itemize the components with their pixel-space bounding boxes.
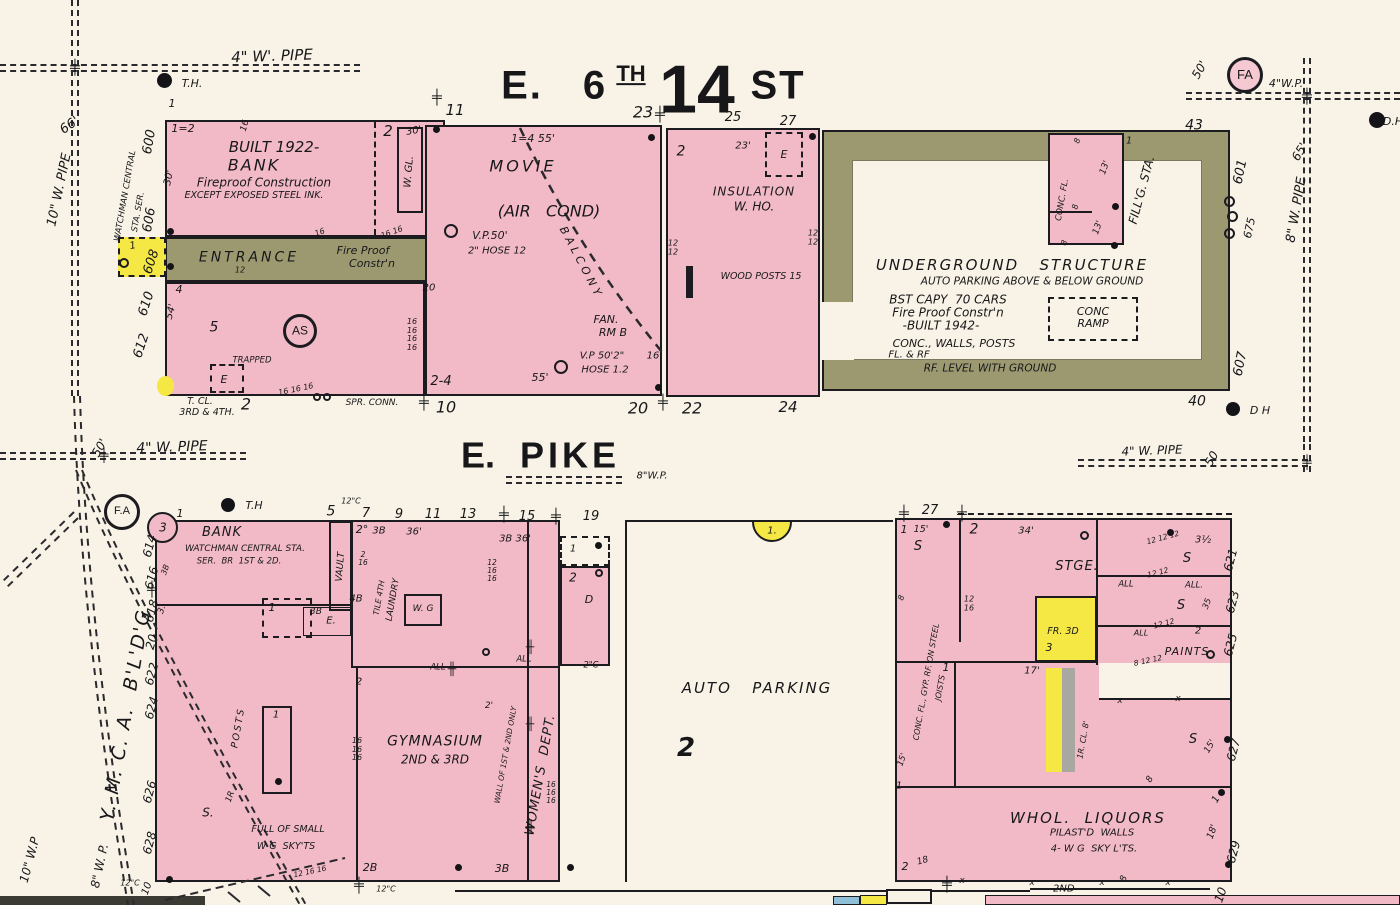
water-pipe-east-vertical <box>1303 58 1311 442</box>
label-15-pike: 15 <box>519 510 536 524</box>
water-pipe-north-west <box>0 64 360 72</box>
wall-dot-6 <box>655 384 662 391</box>
label-27-e: 27 <box>922 504 939 518</box>
label-5-as-room: 5 <box>210 320 219 335</box>
valve-6: ╪ <box>658 394 668 409</box>
label-all-e3: ALL <box>1134 630 1148 639</box>
label-auto-parking: AUTO PARKING <box>682 680 833 696</box>
label-1-cf: 1 <box>1126 137 1132 148</box>
valve-8: ╪ <box>499 506 509 521</box>
label-hose12: 2" HOSE 12 <box>468 247 526 258</box>
x-mark-3: x <box>1099 879 1104 889</box>
underground-west-opening <box>822 302 854 360</box>
label-2nd-3rd: 2ND & 3RD <box>401 754 469 767</box>
wall-dot-13 <box>455 864 462 871</box>
x-mark-1: x <box>959 877 964 887</box>
label-23-top: 23 <box>633 103 653 120</box>
label-paints: PAINTS <box>1165 646 1210 658</box>
bottom-blue-building <box>833 896 860 905</box>
street-e6th-th: TH <box>616 62 645 86</box>
label-movie: MOVIE <box>489 157 556 174</box>
label-623: 623 <box>1224 589 1242 614</box>
label-vp50-2: V.P 50'2" <box>580 352 625 363</box>
label-fire-proof-entr: Fire Proof <box>337 245 390 257</box>
label-675: 675 <box>1242 216 1258 239</box>
label-constrn-entr: Constr'n <box>349 258 395 270</box>
label-3-fr: 3 <box>1046 642 1053 654</box>
label-2-ins: 2 <box>677 144 686 159</box>
label-wg-skyts: W G SKY'TS <box>257 842 315 852</box>
label-25-top: 25 <box>725 111 742 125</box>
label-trapped: TRAPPED <box>232 356 271 365</box>
wall-x960 <box>959 518 961 642</box>
label-7-pike: 7 <box>362 507 370 521</box>
label-3-corner: 3 <box>159 522 167 535</box>
label-16x3-womens: 16 16 16 <box>546 781 556 805</box>
small-room-2 <box>560 566 610 666</box>
label-built-1922: BUILT 1922- <box>229 139 320 155</box>
small-room-1 <box>560 536 610 566</box>
gas-tank-circle-2 <box>1227 211 1238 222</box>
vertical-pipe-circle-1 <box>444 224 458 238</box>
label-2b: 2B <box>363 862 378 874</box>
wall-dot-1 <box>433 126 440 133</box>
label-12-12-e: 12 12 <box>808 229 818 246</box>
label-bank-s: BANK <box>202 526 242 540</box>
label-dh-se: D H <box>1250 405 1270 417</box>
label-2-s: 2 <box>241 395 251 412</box>
label-10-s: 10 <box>436 398 456 415</box>
valve-15: ╪ <box>942 876 952 891</box>
label-underground-structure: UNDERGROUND STRUCTURE <box>876 257 1148 273</box>
x-mark-4: x <box>1165 879 1170 889</box>
label-40: 40 <box>1188 394 1206 409</box>
wall-dot-18 <box>166 876 173 883</box>
label-12-16-e: 12 16 <box>964 595 974 612</box>
gym-west-wall <box>356 666 358 882</box>
label-all-e2: ALL. <box>1185 581 1203 590</box>
label-2nd-s: 2ND — <box>1053 885 1091 896</box>
label-1-e2: 1 <box>943 662 950 674</box>
label-612: 612 <box>131 332 152 360</box>
label-4b: 4B <box>349 595 362 606</box>
label-3rd-4th: 3RD & 4TH. <box>179 408 234 418</box>
wall-dot-8 <box>167 263 174 270</box>
valve-9: ╪ <box>551 508 561 523</box>
label-621: 621 <box>1222 547 1240 572</box>
label-11-pike: 11 <box>425 508 442 522</box>
label-17-e: 17' <box>1024 667 1039 678</box>
label-insulation: INSULATION <box>713 186 795 199</box>
label-16-theater-e: 16 <box>647 352 660 363</box>
label-2-gym: 2 <box>356 678 362 689</box>
wall-dot-16 <box>1218 789 1225 796</box>
label-full-of-small: FULL OF SMALL <box>251 825 324 835</box>
pipe-branch-b <box>6 518 78 588</box>
label-34-e: 34' <box>1018 527 1033 538</box>
label-629: 629 <box>1225 839 1243 864</box>
label-4-as-corner: 4 <box>176 284 183 296</box>
label-conc-walls: CONC., WALLS, POSTS <box>893 338 1016 350</box>
label-10in-wp-sw: 10" W.P <box>18 836 43 884</box>
wood-post-bar <box>686 266 693 298</box>
label-1-tick-top: 1 <box>169 98 176 110</box>
wall-dot-3 <box>809 133 816 140</box>
valve-4: ╪ <box>1302 88 1312 103</box>
bottom-dark-bar <box>0 896 205 905</box>
label-12-16-16: 12 16 16 <box>487 559 497 583</box>
label-12c-top: 12"C <box>341 498 360 507</box>
label-600: 600 <box>141 129 159 156</box>
label-3b-s: 3B <box>495 863 510 875</box>
label-2-pink-room: 2 <box>569 572 577 585</box>
label-36-a: 36' <box>406 528 421 539</box>
label-20-theater-w: 20 <box>423 284 436 295</box>
sprinkler-conn-circle-1 <box>313 393 321 401</box>
dh-hydrant-se <box>1226 402 1240 416</box>
bottom-yellow-building <box>860 895 887 905</box>
label-built-1942: -BUILT 1942- <box>903 320 980 333</box>
label-bank-n: BANK <box>228 156 280 173</box>
label-3half: 3½ <box>1195 536 1211 547</box>
label-2-e2: 2 <box>1195 627 1201 638</box>
label-fl-rf: FL. & RF <box>888 351 929 362</box>
label-607: 607 <box>1232 350 1251 377</box>
label-2deg: 2° <box>356 524 369 536</box>
wall-dot-4 <box>1112 203 1119 210</box>
label-hose-1-2: HOSE 1.2 <box>581 366 628 377</box>
label-fan: FAN. <box>594 314 619 326</box>
label-tcl: T. CL. <box>187 397 213 407</box>
x-mark-5: x <box>1117 697 1122 707</box>
label-9-pike: 9 <box>395 508 403 522</box>
bank-south-wall <box>155 604 352 606</box>
label-606: 606 <box>141 207 159 234</box>
label-20-s: 20 <box>628 399 648 416</box>
x-mark-2: x <box>1029 879 1034 889</box>
label-spr-conn: SPR. CONN. <box>346 399 399 409</box>
label-rm-b: RM B <box>599 327 627 339</box>
label-2c-room: 2"C <box>583 661 598 670</box>
label-610: 610 <box>136 290 157 318</box>
valve-5: ╪ <box>419 394 429 409</box>
x-mark-6: x <box>1175 695 1180 705</box>
water-pipe-pike-mid <box>506 476 622 484</box>
label-8in-wp-mid: 8"W.P. <box>636 472 667 483</box>
label-3b-b: 3B <box>310 608 322 618</box>
water-pipe-pike-west <box>0 452 246 460</box>
label-e-ins: E <box>781 149 788 161</box>
label-24-s: 24 <box>778 399 797 415</box>
small-circle-room2 <box>595 569 603 577</box>
label-vp50: V.P.50' <box>472 230 507 242</box>
bottom-diagonal-ticks <box>228 886 270 902</box>
label-wood-posts: WOOD POSTS 15 <box>721 272 802 282</box>
label-2-e1: 2 <box>970 522 979 537</box>
label-air-cond: (AIR COND) <box>498 202 601 219</box>
wall-tick-2: ╫ <box>526 641 535 654</box>
label-50ft-ne: 50' <box>1190 59 1211 82</box>
wall-dot-7 <box>167 228 174 235</box>
label-1-e1: 1 <box>901 524 908 536</box>
label-8in-wp-sw: 8" W. P. <box>89 843 111 890</box>
label-2-e-s: 2 <box>902 861 909 873</box>
label-stge: STGE. <box>1055 560 1099 574</box>
wall-x955 <box>954 661 956 788</box>
corner-frame-blob <box>157 376 174 396</box>
small-circle-stge <box>1080 531 1089 540</box>
label-4in-w-pipe-pike-e: 4" W. PIPE <box>1121 443 1182 458</box>
wall-tick-3: ╫ <box>526 718 535 731</box>
label-all-e1: ALL <box>1118 580 1133 589</box>
label-27-top: 27 <box>780 115 797 129</box>
street-e6th-st: ST <box>750 64 805 107</box>
yellow-strip <box>1046 668 1062 772</box>
label-all-a: ALL <box>430 663 445 672</box>
label-15-e1: 15' <box>914 525 929 535</box>
fa-ne: FA <box>1237 68 1253 82</box>
label-19-pike: 19 <box>583 510 600 524</box>
gas-tank-circle-1 <box>1224 196 1235 207</box>
label-1eq2: 1=2 <box>171 123 194 135</box>
water-pipe-north-east <box>1186 92 1400 100</box>
street-e6th-6: 6 <box>583 64 605 107</box>
label-2-womens: 2' <box>485 702 493 712</box>
label-w-ho: W. HO. <box>734 201 774 214</box>
label-23ft-ins: 23' <box>735 142 750 153</box>
label-10-swcorner: 10 <box>141 881 156 897</box>
wall-dot-9 <box>943 521 950 528</box>
label-601: 601 <box>1232 158 1251 185</box>
label-th-pike: T.H <box>245 500 262 512</box>
label-1-dashed: 1 <box>269 602 276 614</box>
label-entrance: ENTRANCE <box>199 250 299 265</box>
water-pipe-pike-east <box>1078 459 1308 467</box>
label-1-postbox: 1 <box>273 711 279 722</box>
label-d-room: D <box>585 594 593 606</box>
label-12c-s: 12"C <box>376 886 395 895</box>
label-4in-w-pipe-pike-w: 4" W. PIPE <box>136 439 208 457</box>
valve-12: ╪ <box>354 877 364 892</box>
label-12-entrance: 12 <box>235 267 245 276</box>
label-wg: W. G <box>413 605 434 615</box>
label-as: AS <box>292 325 308 338</box>
valve-1: ╪ <box>70 59 80 74</box>
label-1-e-w: 1 <box>896 782 902 793</box>
label-dh-ne: D.H <box>1383 116 1400 128</box>
fa-pike: F.A <box>114 506 130 518</box>
label-s-e3: S <box>1177 599 1185 613</box>
label-pilastd-walls: PILAST'D WALLS <box>1050 829 1134 840</box>
label-3b-a: 3B <box>372 527 385 538</box>
pipe-branch-a <box>2 512 74 582</box>
label-4in-w-pipe-nw: 4" W'. PIPE <box>231 46 313 65</box>
wall-tick-1: ╫ <box>448 663 457 676</box>
small-circle-gym <box>482 648 490 656</box>
label-5-pike: 5 <box>327 504 336 519</box>
street-epike-e: E. <box>461 437 495 476</box>
label-parking-above-below: AUTO PARKING ABOVE & BELOW GROUND <box>921 276 1143 287</box>
label-43: 43 <box>1185 118 1203 133</box>
valve-14: ╪ <box>1302 455 1311 469</box>
label-1-notch: 1. <box>767 527 777 538</box>
label-except-exposed: EXCEPT EXPOSED STEEL INK. <box>185 191 324 201</box>
label-1eq4-55: 1=4 55' <box>511 133 555 145</box>
label-4-wg-skylts: 4- W G SKY L'TS. <box>1051 845 1137 856</box>
east-block-gap <box>1099 663 1230 698</box>
label-all-b: ALL <box>516 655 531 664</box>
label-12c-sw: 12"C <box>120 880 139 889</box>
sanborn-map: E.6TH14STE.PIKE4" W'. PIPET.H.166'10" W.… <box>0 0 1400 905</box>
label-watchman-central-s: WATCHMAN CENTRAL STA. <box>185 545 305 555</box>
label-12-12-w: 12 12 <box>668 239 678 256</box>
label-fr-3d: FR. 3D <box>1047 627 1078 637</box>
label-13-pike: 13 <box>460 508 477 522</box>
sprinkler-conn-circle-2 <box>323 393 331 401</box>
label-s-e1: S <box>914 540 922 554</box>
label-2-4: 2-4 <box>430 375 451 389</box>
label-s-e2: S <box>1183 552 1191 566</box>
valve-10: ╪ <box>899 505 909 520</box>
label-625: 625 <box>1222 632 1240 657</box>
label-3b-36: 3B 36' <box>499 535 531 546</box>
wall-dot-2 <box>648 134 655 141</box>
label-1-pike: 1 <box>177 508 184 520</box>
wall-dot-14 <box>567 864 574 871</box>
label-conc-ramp: CONC RAMP <box>1077 306 1109 330</box>
gas-tank-circle-3 <box>1224 228 1235 239</box>
bank-interior-wall <box>374 122 376 235</box>
wall-dot-12 <box>275 778 282 785</box>
whol-liquors-north-wall <box>895 786 1232 788</box>
valve-3: ╪ <box>655 106 665 121</box>
label-16-stack-theater: 16 16 16 16 <box>407 318 417 353</box>
label-s-e4: S <box>1189 733 1197 747</box>
valve-2: ╪ <box>432 89 442 104</box>
label-4in-wp-ne: 4"W.P. <box>1269 78 1303 90</box>
bottom-white-box <box>886 889 932 904</box>
street-e6th-e: E. <box>501 64 543 107</box>
th-manhole-pike <box>221 498 235 512</box>
label-gymnasium: GYMNASIUM <box>387 734 483 749</box>
bottom-pink-building <box>985 895 1400 905</box>
valve-11: ╪ <box>957 505 967 520</box>
label-16x3-gym: 16 16 16 <box>352 737 362 763</box>
th-manhole-north <box>157 73 172 88</box>
east-block-dashed-front <box>958 513 1232 515</box>
label-1-white-room: 1 <box>570 545 576 556</box>
label-627: 627 <box>1225 737 1243 762</box>
vertical-pipe-circle-2 <box>554 360 568 374</box>
gray-strip <box>1062 668 1075 772</box>
street-epike-pike: PIKE <box>520 437 620 476</box>
label-e-trapped: E <box>221 374 228 386</box>
wall-dot-5 <box>1111 242 1118 249</box>
label-55ft: 55' <box>531 372 548 384</box>
label-22-s: 22 <box>682 399 702 416</box>
label-2-bank-room: 2 <box>383 123 393 139</box>
label-whol-liquors: WHOL. LIQUORS <box>1010 810 1166 826</box>
frame-box-circle <box>119 258 129 268</box>
label-fireproof-construction: Fireproof Construction <box>197 177 331 190</box>
label-2-parking: 2 <box>677 734 695 762</box>
label-e-sm: E. <box>326 617 336 628</box>
label-s-ymca: S. <box>202 807 213 820</box>
label-11-top: 11 <box>445 102 464 118</box>
pipe-curve-10in-a <box>74 396 128 905</box>
label-th-top: T.H. <box>182 78 203 90</box>
parking-west-line <box>625 520 627 882</box>
district-number-14: 14 <box>659 53 735 126</box>
wall-dot-11 <box>595 542 602 549</box>
label-ser-br: SER. BR 1ST & 2D. <box>197 557 282 566</box>
label-2-16: 2 16 <box>358 551 368 567</box>
valve-13: ╪ <box>99 448 108 462</box>
label-rf-level: RF. LEVEL WITH GROUND <box>924 363 1057 374</box>
